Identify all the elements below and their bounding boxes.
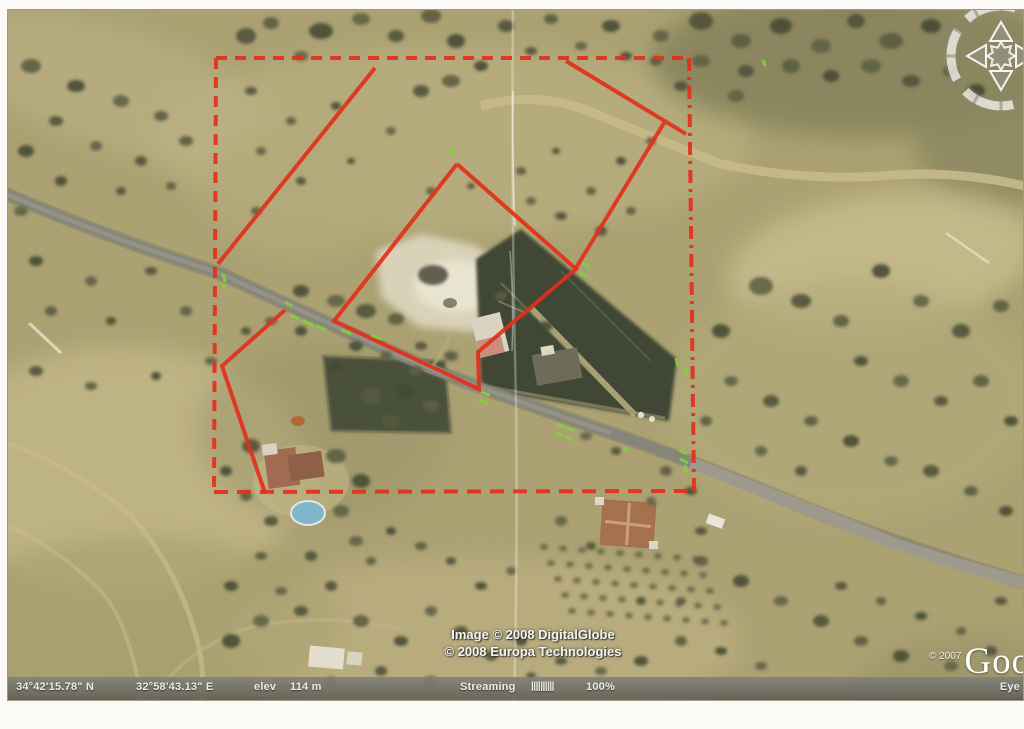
pan-right-arrow[interactable] [1016, 45, 1024, 67]
latitude-readout: 34°42'15.78" N [16, 681, 94, 693]
swimming-pool [291, 501, 325, 525]
streaming-percent: 100% [586, 681, 615, 693]
attribution-line1: Image © 2008 DigitalGlobe [408, 626, 658, 643]
longitude-readout: 32°58'43.13" E [136, 681, 213, 693]
photo-edge-shadow [8, 698, 1023, 701]
elevation-label: elev [254, 681, 276, 693]
logo-wordmark: Goog [964, 641, 1024, 682]
vehicle [649, 416, 655, 422]
map-canvas [7, 9, 1024, 701]
compass-center-knob[interactable] [987, 42, 1015, 70]
status-bar: 34°42'15.78" N 32°58'43.13" E elev 114 m… [8, 677, 1023, 698]
elevation-value: 114 m [290, 681, 322, 693]
eye-altitude-label: Eye [1000, 681, 1020, 693]
attribution-line2: © 2008 Europa Technologies [408, 643, 658, 660]
logo-copyright: © 2007 [929, 651, 961, 662]
streaming-label: Streaming [460, 681, 516, 693]
streaming-progress-bars: |||||||||| [531, 681, 554, 692]
map-attribution: Image © 2008 DigitalGlobe © 2008 Europa … [408, 626, 658, 660]
satellite-map[interactable]: Image © 2008 DigitalGlobe © 2008 Europa … [7, 9, 1024, 701]
terrain-base [7, 9, 1024, 701]
vehicle [638, 412, 644, 418]
